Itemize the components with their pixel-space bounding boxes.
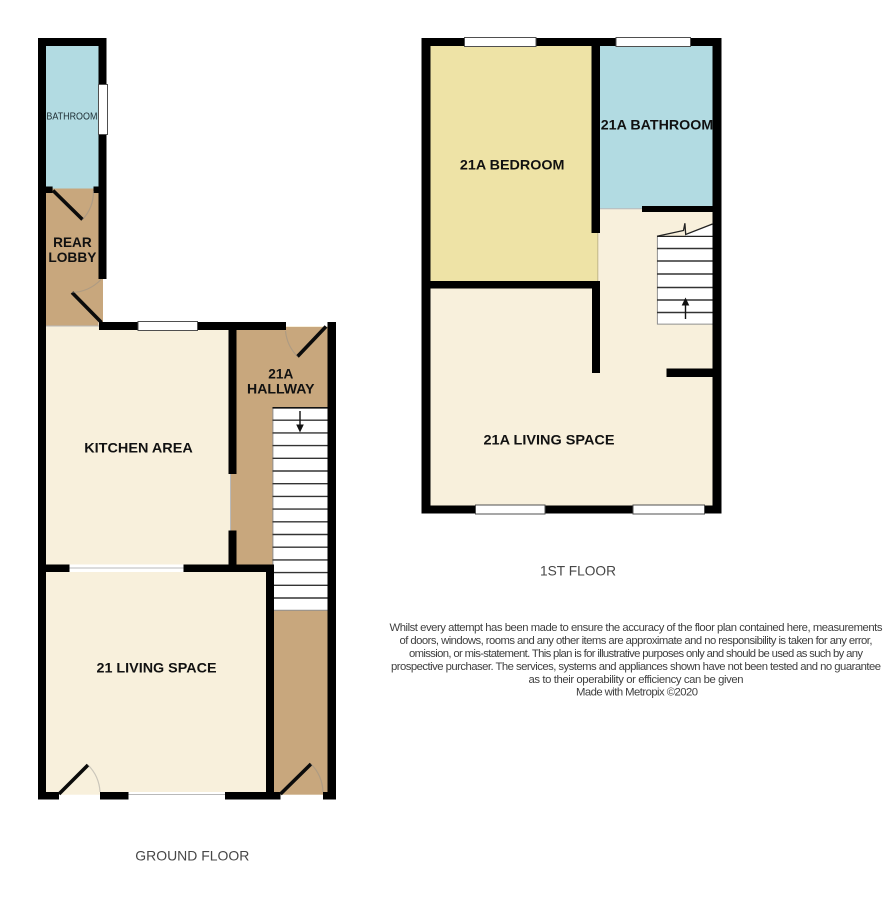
- svg-text:21A BATHROOM: 21A BATHROOM: [601, 117, 714, 133]
- svg-text:of doors, windows, rooms and a: of doors, windows, rooms and any other i…: [400, 635, 873, 647]
- svg-text:LOBBY: LOBBY: [48, 249, 97, 265]
- svg-text:21A LIVING SPACE: 21A LIVING SPACE: [484, 432, 615, 448]
- svg-text:21A: 21A: [268, 366, 293, 382]
- svg-text:21 LIVING SPACE: 21 LIVING SPACE: [97, 660, 217, 676]
- svg-text:1ST FLOOR: 1ST FLOOR: [540, 562, 616, 578]
- svg-text:KITCHEN AREA: KITCHEN AREA: [84, 440, 193, 456]
- svg-text:as to their operability or eff: as to their operability or efficiency ca…: [529, 674, 744, 686]
- svg-text:omission, or mis-statement. Th: omission, or mis-statement. This plan is…: [409, 648, 863, 660]
- svg-text:Made with Metropix ©2020: Made with Metropix ©2020: [576, 687, 698, 699]
- svg-text:Whilst every attempt has been: Whilst every attempt has been made to en…: [390, 622, 883, 634]
- svg-text:prospective purchaser. The ser: prospective purchaser. The services, sys…: [391, 661, 881, 673]
- svg-text:HALLWAY: HALLWAY: [247, 381, 315, 397]
- svg-text:REAR: REAR: [53, 234, 92, 250]
- svg-text:GROUND FLOOR: GROUND FLOOR: [135, 847, 249, 863]
- svg-text:21A BEDROOM: 21A BEDROOM: [460, 156, 565, 172]
- svg-text:BATHROOM: BATHROOM: [46, 111, 97, 123]
